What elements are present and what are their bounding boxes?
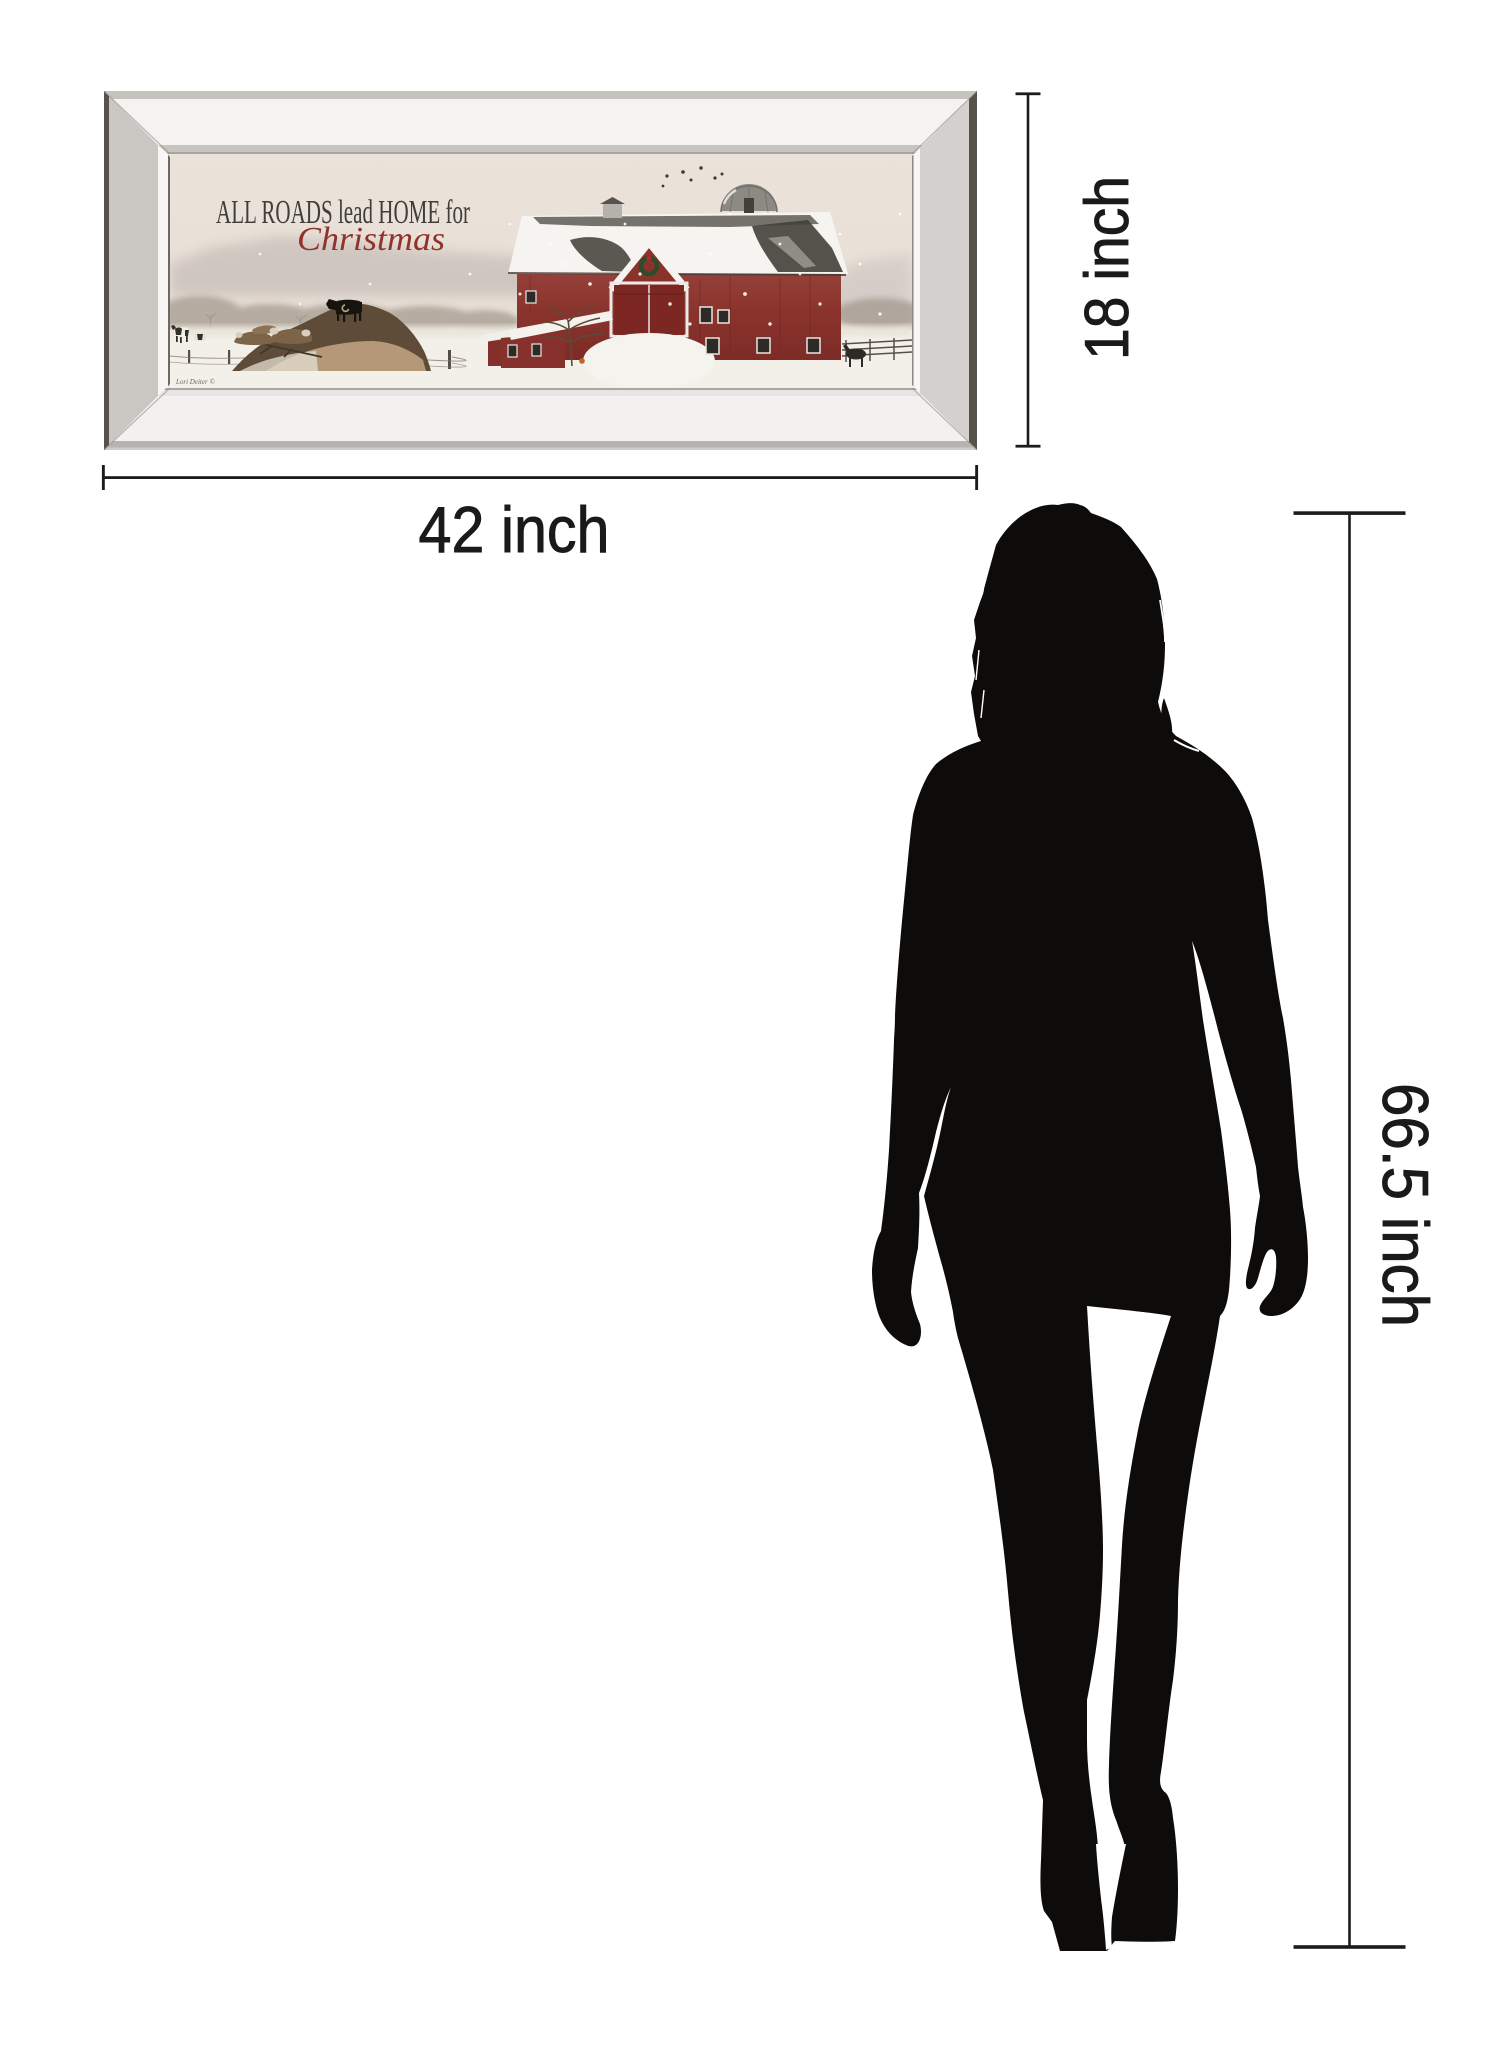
svg-text:18 inch: 18 inch: [1073, 176, 1142, 360]
svg-text:66.5 inch: 66.5 inch: [1369, 1083, 1442, 1327]
svg-text:Christmas: Christmas: [297, 221, 445, 258]
svg-text:42 inch: 42 inch: [419, 493, 610, 566]
svg-text:Lori Deiter ©: Lori Deiter ©: [175, 378, 215, 386]
